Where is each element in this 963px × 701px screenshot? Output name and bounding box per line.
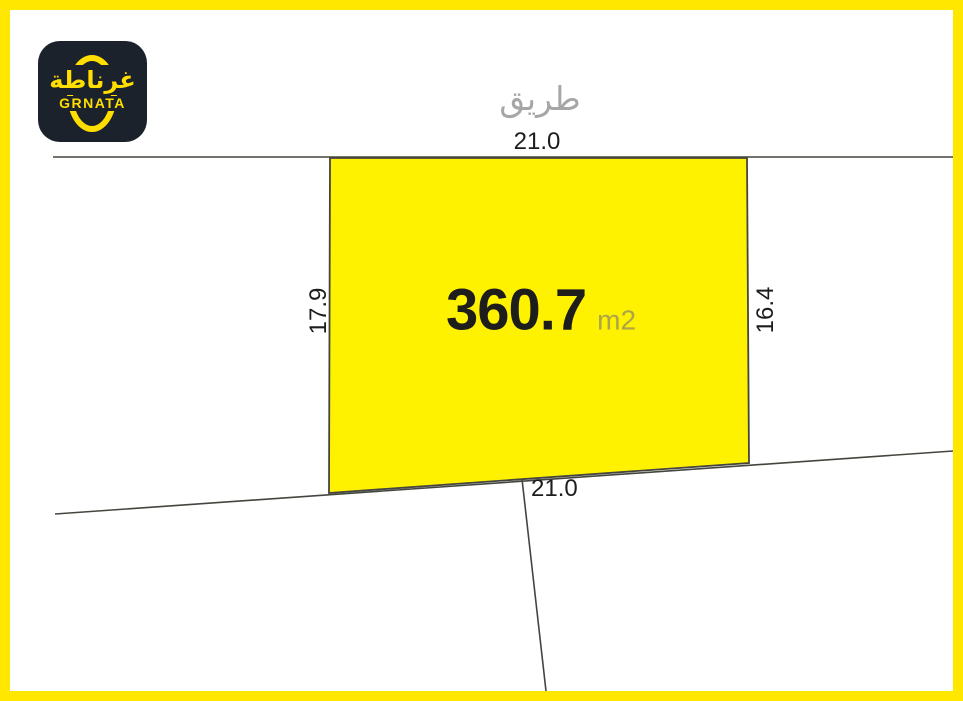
road-label: طريق [499,80,580,118]
area-label: 360.7 m2 [446,277,636,344]
divider-line [522,479,546,691]
right-dimension-label: 16.4 [754,287,778,334]
plot-map: غرناطة GRNATA طريق 21.0 17.9 16.4 21.0 3… [0,0,963,701]
logo-latin-text: GRNATA [38,96,147,111]
logo-arabic-text: غرناطة [38,65,147,95]
grnata-logo: غرناطة GRNATA [38,41,147,142]
left-dimension-label: 17.9 [307,288,331,335]
area-unit: m2 [597,305,636,337]
top-dimension-label: 21.0 [514,130,561,154]
area-value: 360.7 [446,277,586,344]
bottom-dimension-label: 21.0 [531,477,578,501]
